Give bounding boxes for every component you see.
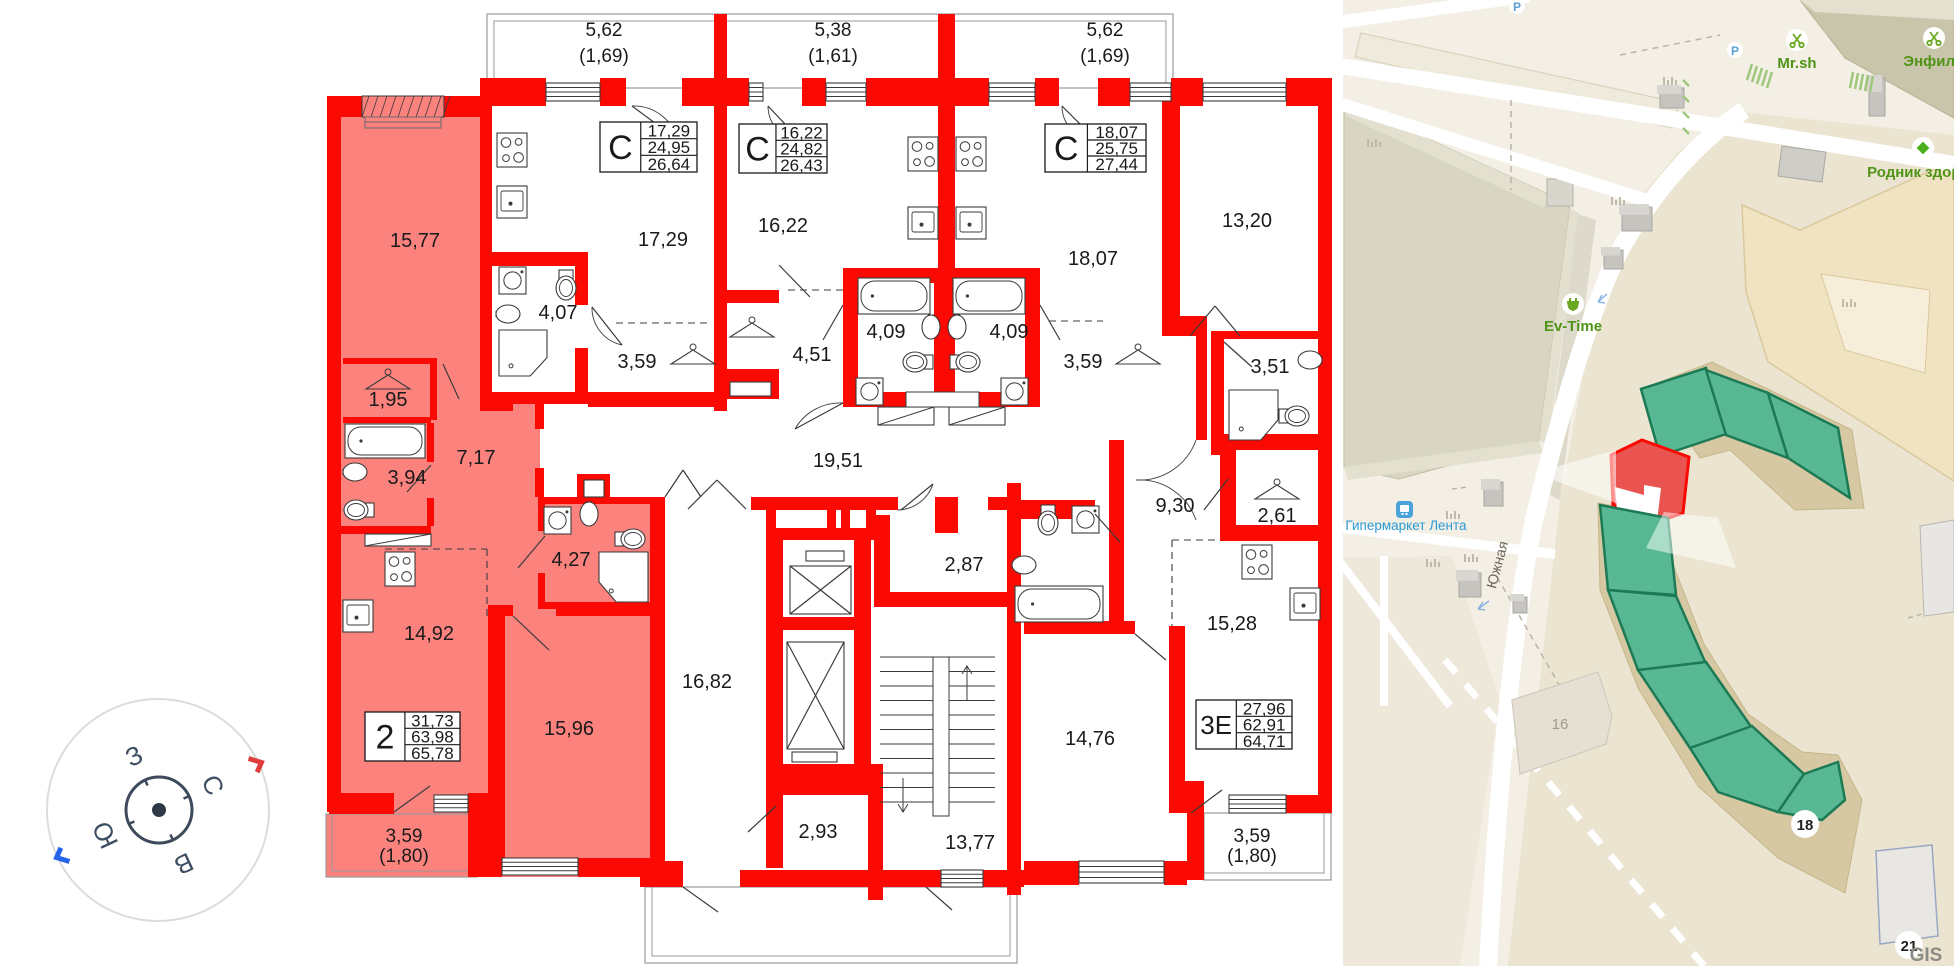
svg-text:С: С xyxy=(1054,130,1079,168)
svg-text:5,38: 5,38 xyxy=(815,20,852,41)
svg-text:4,51: 4,51 xyxy=(793,344,832,366)
svg-text:3,59: 3,59 xyxy=(1234,826,1271,847)
svg-text:7,17: 7,17 xyxy=(457,447,496,469)
svg-text:3,59: 3,59 xyxy=(618,351,657,373)
svg-text:(1,69): (1,69) xyxy=(1080,46,1130,67)
svg-text:2,61: 2,61 xyxy=(1258,505,1297,527)
svg-text:3,94: 3,94 xyxy=(388,467,427,489)
svg-text:(1,61): (1,61) xyxy=(808,46,858,67)
svg-text:18,07: 18,07 xyxy=(1068,248,1118,270)
svg-text:27,44: 27,44 xyxy=(1095,155,1138,174)
svg-text:Гипермаркет Лента: Гипермаркет Лента xyxy=(1345,518,1467,533)
svg-text:Энфилд: Энфилд xyxy=(1903,53,1954,70)
svg-text:15,28: 15,28 xyxy=(1207,613,1257,635)
svg-text:Mr.sh: Mr.sh xyxy=(1777,55,1816,72)
svg-text:С: С xyxy=(608,129,633,167)
svg-text:15,96: 15,96 xyxy=(544,718,594,740)
svg-text:3,59: 3,59 xyxy=(1064,351,1103,373)
svg-text:2,93: 2,93 xyxy=(799,821,838,843)
svg-text:Родник здоров: Родник здоров xyxy=(1867,164,1954,181)
svg-text:1,95: 1,95 xyxy=(369,389,408,411)
svg-text:14,92: 14,92 xyxy=(404,623,454,645)
svg-text:14,76: 14,76 xyxy=(1065,728,1115,750)
svg-text:2,87: 2,87 xyxy=(945,554,984,576)
svg-text:16,22: 16,22 xyxy=(758,215,808,237)
svg-text:(1,80): (1,80) xyxy=(1227,846,1277,867)
svg-text:15,77: 15,77 xyxy=(390,230,440,252)
svg-text:26,64: 26,64 xyxy=(648,155,691,174)
svg-text:5,62: 5,62 xyxy=(1087,20,1124,41)
svg-text:4,09: 4,09 xyxy=(867,321,906,343)
svg-text:5,62: 5,62 xyxy=(586,20,623,41)
svg-text:4,07: 4,07 xyxy=(539,302,578,324)
svg-text:P: P xyxy=(1731,44,1739,58)
svg-text:3,51: 3,51 xyxy=(1251,356,1290,378)
svg-text:2: 2 xyxy=(375,719,394,757)
svg-text:17,29: 17,29 xyxy=(638,229,688,251)
svg-text:16,82: 16,82 xyxy=(682,671,732,693)
svg-text:26,43: 26,43 xyxy=(780,156,823,175)
svg-text:4,09: 4,09 xyxy=(990,321,1029,343)
svg-text:4,27: 4,27 xyxy=(552,549,591,571)
svg-text:64,71: 64,71 xyxy=(1243,732,1286,751)
svg-text:19,51: 19,51 xyxy=(813,450,863,472)
svg-text:16: 16 xyxy=(1552,716,1569,733)
svg-text:3,59: 3,59 xyxy=(386,826,423,847)
svg-text:65,78: 65,78 xyxy=(411,744,454,763)
svg-text:GIS: GIS xyxy=(1910,945,1943,966)
svg-text:9,30: 9,30 xyxy=(1156,495,1195,517)
svg-text:(1,80): (1,80) xyxy=(379,846,429,867)
svg-text:Ev-Time: Ev-Time xyxy=(1544,318,1602,335)
svg-text:13,20: 13,20 xyxy=(1222,210,1272,232)
svg-text:(1,69): (1,69) xyxy=(579,46,629,67)
svg-text:P: P xyxy=(1513,0,1521,14)
svg-text:18: 18 xyxy=(1797,817,1814,834)
svg-text:3Е: 3Е xyxy=(1200,710,1232,740)
svg-text:С: С xyxy=(745,131,770,169)
svg-text:13,77: 13,77 xyxy=(945,832,995,854)
